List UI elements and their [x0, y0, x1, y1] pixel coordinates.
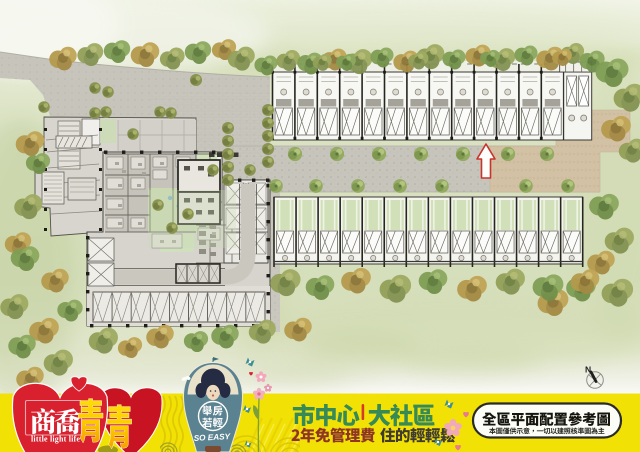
svg-text:N: N: [585, 365, 591, 375]
svg-text:little light life: little light life: [31, 435, 80, 444]
